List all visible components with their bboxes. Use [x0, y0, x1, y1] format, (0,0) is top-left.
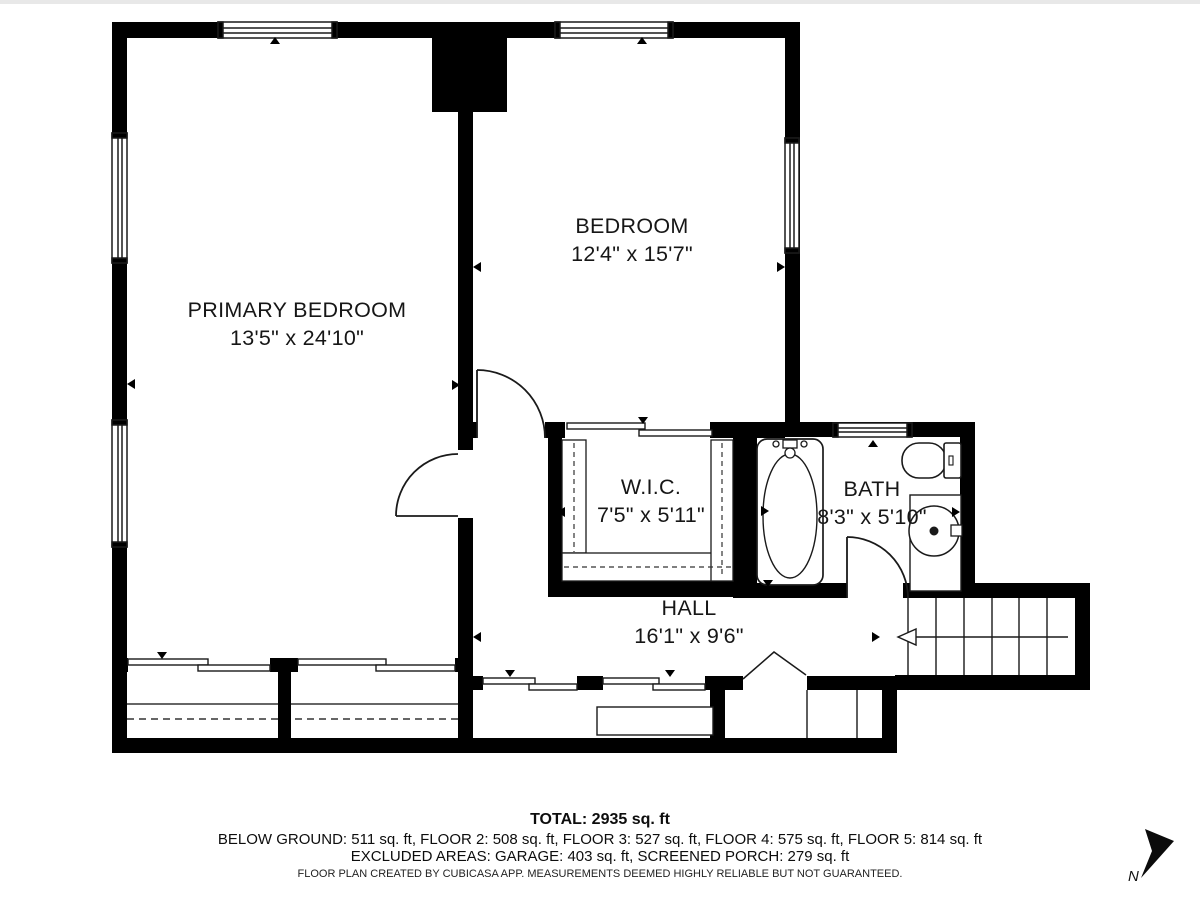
window-bedroom-right	[785, 138, 799, 253]
stairs-direction-arrow	[898, 629, 1068, 645]
porch-overhang-lines	[127, 704, 458, 719]
fireplace-chevron	[743, 652, 806, 679]
bath-door	[847, 537, 908, 598]
porch-divider-wall	[278, 672, 291, 738]
excluded-areas-text: EXCLUDED AREAS: GARAGE: 403 sq. ft, SCRE…	[0, 848, 1200, 865]
floor-plan-page: PRIMARY BEDROOM 13'5" x 24'10" BEDROOM 1…	[0, 0, 1200, 900]
room-label-bedroom: BEDROOM 12'4" x 15'7"	[571, 212, 693, 268]
room-dimensions: 16'1" x 9'6"	[634, 622, 744, 650]
window-left-lower	[112, 420, 127, 547]
room-name: W.I.C.	[621, 475, 681, 499]
window-top-bedroom	[555, 22, 673, 38]
floor-areas-text: BELOW GROUND: 511 sq. ft, FLOOR 2: 508 s…	[0, 831, 1200, 848]
room-label-primary-bedroom: PRIMARY BEDROOM 13'5" x 24'10"	[188, 296, 407, 352]
room-dimensions: 12'4" x 15'7"	[571, 240, 693, 268]
window-left-upper	[112, 133, 127, 263]
room-dimensions: 7'5" x 5'11"	[597, 501, 705, 529]
window-top-primary	[218, 22, 337, 38]
walls	[112, 22, 1090, 753]
total-area-text: TOTAL: 2935 sq. ft	[0, 811, 1200, 829]
room-name: BATH	[844, 477, 901, 501]
room-dimensions: 8'3" x 5'10"	[817, 503, 927, 531]
floor-plan-drawing	[0, 0, 1200, 900]
room-label-hall: HALL 16'1" x 9'6"	[634, 594, 744, 650]
stairs	[898, 598, 1068, 675]
lower-room-dividers	[807, 690, 857, 738]
toilet	[902, 443, 961, 478]
window-bath-top	[833, 423, 912, 437]
room-name: PRIMARY BEDROOM	[188, 298, 407, 322]
bench-rectangle	[597, 707, 713, 735]
room-label-wic: W.I.C. 7'5" x 5'11"	[597, 473, 705, 529]
wall-direction-markers	[127, 37, 960, 677]
room-dimensions: 13'5" x 24'10"	[188, 324, 407, 352]
room-name: BEDROOM	[575, 214, 688, 238]
room-label-bath: BATH 8'3" x 5'10"	[817, 475, 927, 531]
disclaimer-text: FLOOR PLAN CREATED BY CUBICASA APP. MEAS…	[0, 868, 1200, 880]
north-label: N	[1128, 868, 1139, 885]
room-name: HALL	[662, 596, 717, 620]
primary-bedroom-door	[396, 454, 458, 516]
